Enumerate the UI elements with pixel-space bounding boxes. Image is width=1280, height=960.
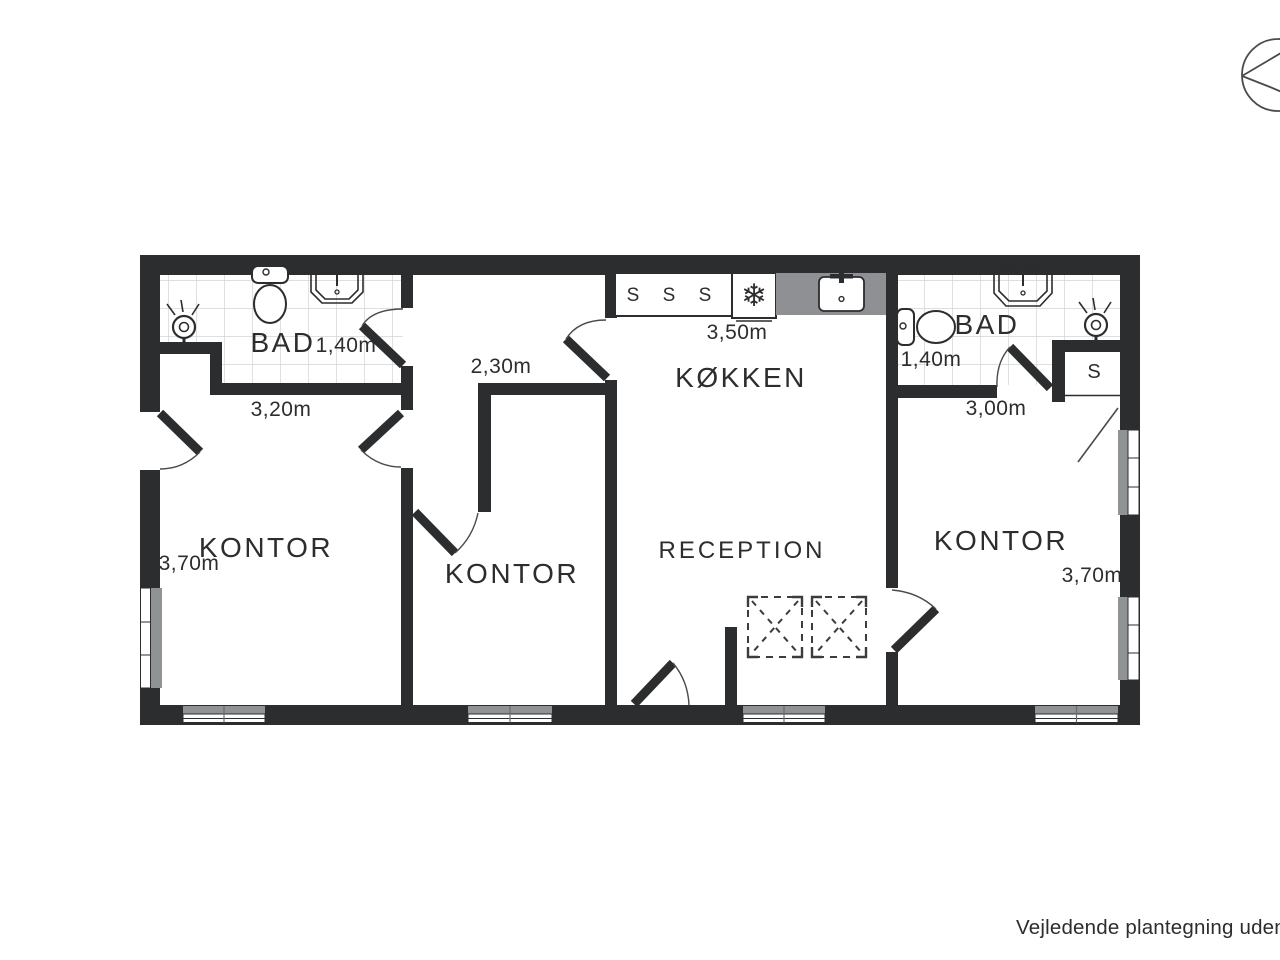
door-leaf	[894, 609, 936, 650]
closet-door-line	[1078, 408, 1118, 462]
disclaimer-text: Vejledende plantegning uden a	[1016, 916, 1280, 939]
window	[141, 588, 163, 688]
door	[634, 663, 689, 705]
room-label-kontor-right: KONTOR	[934, 525, 1068, 556]
toilet-icon	[252, 266, 288, 323]
wall-bad-left-step	[210, 342, 222, 390]
cabinet-letter: S	[663, 285, 676, 306]
door-arc	[892, 590, 936, 609]
skylight-markers	[748, 597, 866, 657]
dimension-label: 1,40m	[316, 334, 377, 357]
wall-exterior-bottom	[140, 705, 1140, 725]
wall-corridor	[478, 392, 491, 512]
room-label-bad-left: BAD	[250, 327, 315, 358]
dimension-label: 3,20m	[251, 398, 312, 421]
wall-exterior-left	[140, 255, 160, 412]
room-label-kontor-middle: KONTOR	[445, 558, 579, 589]
wall-closet-top	[1052, 340, 1122, 352]
dimension-label: 3,70m	[1062, 564, 1123, 587]
door-arc	[361, 450, 401, 467]
skylight-marker	[812, 597, 866, 657]
compass-icon	[1242, 39, 1280, 111]
door-arc	[566, 320, 606, 339]
floor-plan: S S S ❄	[0, 0, 1280, 960]
window	[1035, 706, 1118, 723]
dimension-label: 3,50m	[707, 321, 768, 344]
door-arc	[160, 452, 200, 469]
cabinet-letter: S	[627, 285, 640, 306]
kitchen-fixtures: S S S ❄	[615, 266, 886, 321]
window	[183, 706, 265, 723]
window	[468, 706, 552, 723]
door-arc	[673, 663, 689, 705]
door	[415, 512, 478, 553]
cabinet-letter: S	[699, 285, 712, 306]
door	[892, 590, 936, 650]
wall-bad-left-bottom	[210, 383, 405, 395]
snowflake-icon: ❄	[741, 278, 767, 313]
dimension-label: 1,40m	[901, 348, 962, 371]
wall-reception-stub	[725, 627, 737, 707]
wall-interior	[401, 266, 413, 308]
wall-kontor-middle-top	[478, 383, 612, 395]
closet-letter: S	[1087, 361, 1100, 383]
floor-plan-page: S S S ❄	[0, 0, 1280, 960]
door-leaf	[361, 413, 401, 450]
room-label-reception: RECEPTION	[658, 537, 825, 564]
dimension-label: 2,30m	[471, 355, 532, 378]
door-leaf	[634, 663, 673, 704]
room-label-kokken: KØKKEN	[675, 362, 807, 393]
door-arc	[455, 513, 478, 553]
wall-interior	[401, 468, 413, 710]
room-label-bad-right: BAD	[954, 309, 1019, 340]
door-leaf	[160, 413, 200, 452]
skylight-marker	[748, 597, 802, 657]
windows	[141, 430, 1140, 723]
window	[1118, 430, 1139, 515]
door	[361, 413, 401, 467]
toilet-icon	[897, 309, 955, 345]
door-leaf	[566, 339, 607, 378]
door	[566, 320, 607, 378]
wall-interior	[605, 380, 617, 707]
dimension-label: 3,00m	[966, 397, 1027, 420]
door-leaf	[415, 512, 455, 553]
door	[160, 413, 200, 469]
wall-interior	[401, 366, 413, 410]
wall-interior	[886, 652, 898, 707]
window	[1118, 597, 1139, 680]
dimension-label: 3,70m	[159, 552, 220, 575]
window	[743, 706, 825, 723]
